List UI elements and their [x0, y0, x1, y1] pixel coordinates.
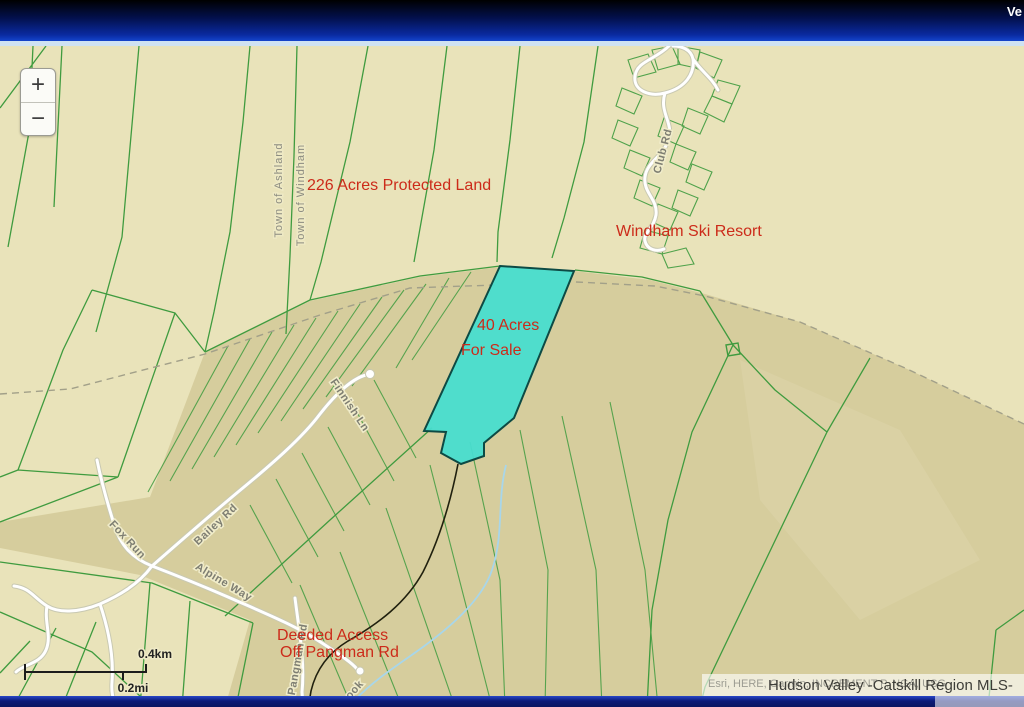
zoom-control: + −: [20, 68, 56, 136]
town-label-windham: Town of Windham: [295, 144, 307, 246]
header-right-text[interactable]: Ve: [1007, 4, 1022, 19]
cul-de-sac-bulb: [366, 370, 375, 379]
town-label-ashland: Town of Ashland: [273, 142, 285, 237]
label-parcel-for-sale: For Sale: [461, 342, 522, 359]
label-off-pangman: Off Pangman Rd: [280, 644, 399, 661]
zoom-in-button[interactable]: +: [21, 69, 55, 102]
cul-de-sac-bulb: [356, 667, 364, 675]
map-viewer-window: Ve: [0, 0, 1024, 707]
attribution-mls: Hudson Valley -Catskill Region MLS-: [768, 677, 1013, 694]
label-protected-land: 226 Acres Protected Land: [307, 177, 491, 194]
label-parcel-acres: 40 Acres: [477, 317, 539, 334]
zoom-out-button[interactable]: −: [21, 103, 55, 136]
map-attribution: Esri, HERE, Garmin, INCREMENT P, NGA, US…: [702, 674, 1024, 696]
minus-icon: −: [31, 105, 45, 133]
label-deeded-access: Deeded Access: [277, 627, 388, 644]
scale-km-label: 0.4km: [138, 647, 172, 661]
label-ski-resort: Windham Ski Resort: [616, 223, 762, 240]
footer-overlay: [935, 696, 1024, 707]
header-bar: Ve: [0, 0, 1024, 41]
plus-icon: +: [31, 71, 45, 99]
footer-bar: [0, 696, 1024, 707]
map-canvas[interactable]: Fox Run Bailey Rd Alpine Way Finnish Ln …: [0, 46, 1024, 707]
scale-mi-label: 0.2mi: [118, 681, 149, 695]
